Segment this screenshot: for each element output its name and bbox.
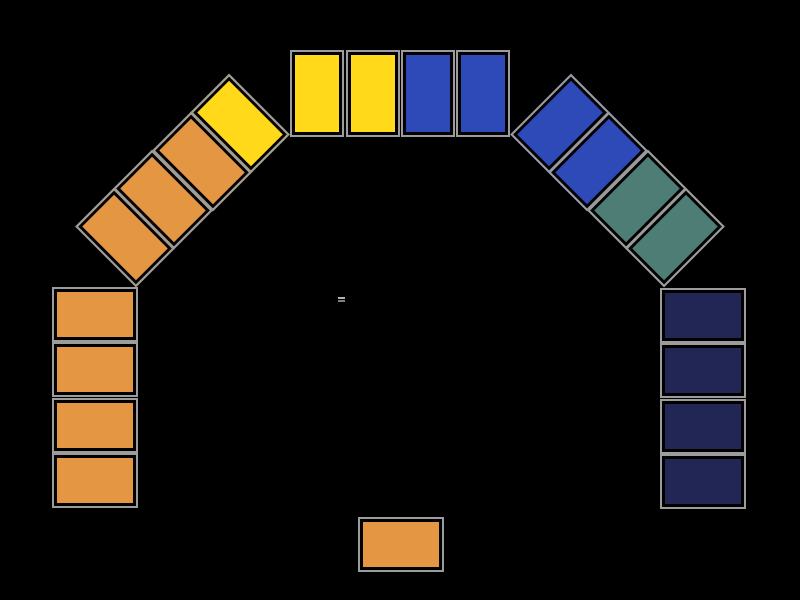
- equals-icon-top-bar: [338, 297, 345, 299]
- tile-top-row-3[interactable]: [401, 50, 455, 137]
- tile-right-col-3[interactable]: [660, 399, 746, 454]
- equals-icon-bottom-bar: [338, 300, 345, 302]
- tile-bottom-center[interactable]: [358, 517, 444, 572]
- tile-top-row-2[interactable]: [346, 50, 400, 137]
- tile-right-col-2[interactable]: [660, 343, 746, 398]
- tile-left-col-1[interactable]: [52, 287, 138, 342]
- tile-left-col-4[interactable]: [52, 453, 138, 508]
- tile-arch: [0, 0, 800, 600]
- tile-top-row-1[interactable]: [290, 50, 344, 137]
- tile-right-col-1[interactable]: [660, 288, 746, 343]
- game-board: [0, 0, 800, 600]
- equals-icon: [338, 297, 346, 304]
- tile-left-col-3[interactable]: [52, 398, 138, 453]
- tile-right-col-4[interactable]: [660, 454, 746, 509]
- tile-left-col-2[interactable]: [52, 342, 138, 397]
- tile-top-row-4[interactable]: [456, 50, 510, 137]
